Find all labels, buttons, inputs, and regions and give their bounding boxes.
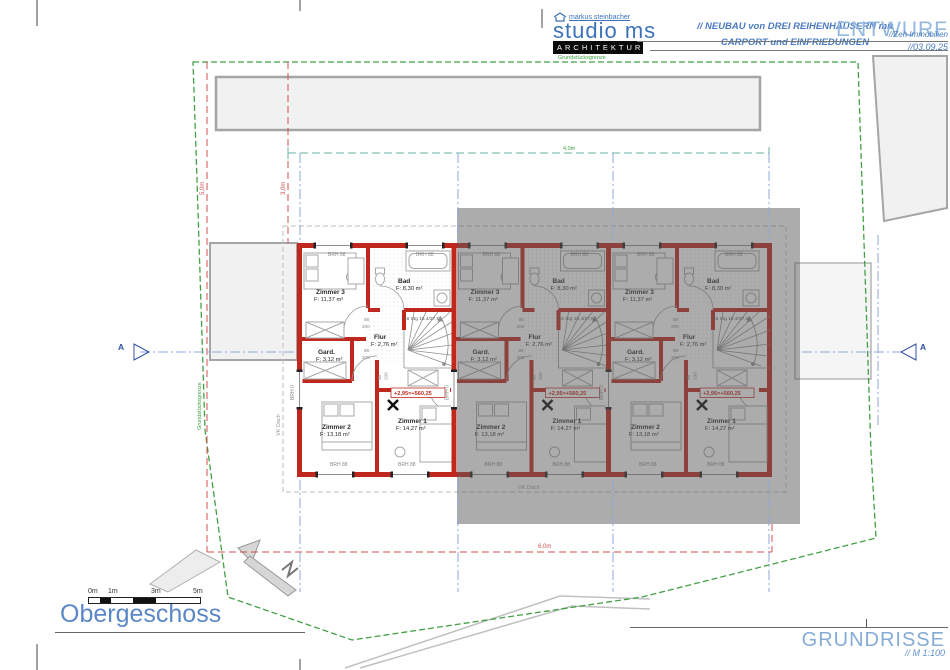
boundary-label-top: Grundstücksgrenze xyxy=(558,55,606,61)
existing-building-right xyxy=(873,56,947,221)
sill-label-zero: BRH 0 xyxy=(445,385,451,400)
dim-top-label: 4,0m xyxy=(563,146,576,152)
window xyxy=(406,243,445,249)
boundary-label-left: Grundstücksgrenze xyxy=(197,382,203,430)
svg-text:200: 200 xyxy=(362,355,370,360)
room-name-zimmer3: Zimmer 3 xyxy=(316,289,345,296)
studio-name: studio ms xyxy=(553,22,656,41)
sheet-scale: // M 1:100 xyxy=(700,648,945,658)
street-edges xyxy=(345,596,650,668)
washbasin xyxy=(434,290,450,306)
north-arrow-icon xyxy=(238,540,298,596)
existing-building-top-strip xyxy=(216,77,760,130)
roof-edge-label-left: VK Dach xyxy=(276,414,282,436)
room-area-zimmer1: F: 14,27 m² xyxy=(396,426,426,432)
sill-label: BRH 88 xyxy=(328,252,346,258)
client-label: //Zeh Immobilien xyxy=(800,30,948,39)
window xyxy=(314,243,353,249)
ghost-units-overlay xyxy=(457,208,800,524)
room-name-zimmer1: Zimmer 1 xyxy=(398,418,427,425)
room-name-zimmer2: Zimmer 2 xyxy=(322,424,351,431)
stair-note: 16 Stg 18,4/27,6 xyxy=(404,316,440,322)
setback-dim-bottom: 6,0m xyxy=(538,544,551,550)
svg-text:88: 88 xyxy=(377,374,382,380)
scale-tick-label: 0m xyxy=(88,588,98,595)
window xyxy=(391,472,430,478)
scale-tick-label: 5m xyxy=(193,588,203,595)
sill-label-zero: BRH 0 xyxy=(290,385,296,400)
wardrobe xyxy=(408,370,438,386)
room-name-bad: Bad xyxy=(398,278,410,285)
dimension-line-top: 4,0m xyxy=(288,146,769,159)
setback-dim-outer: 5,0m xyxy=(200,182,206,195)
studio-logo: markus steinbacher studio ms ARCHITEKTUR xyxy=(553,12,656,54)
wardrobe xyxy=(306,322,344,338)
sill-label: BRH 88 xyxy=(416,252,434,258)
svg-text:200: 200 xyxy=(362,324,370,329)
desk xyxy=(348,258,364,284)
section-marker-left: A xyxy=(118,342,149,360)
room-area-zimmer3: F: 11,37 m² xyxy=(314,297,343,303)
plan-title: Obergeschoss xyxy=(60,600,221,629)
footer-rule-left xyxy=(55,632,305,633)
room-area-gard: F: 3,12 m² xyxy=(316,357,342,363)
scale-tick-label: 1m xyxy=(108,588,118,595)
room-name-gard: Gard. xyxy=(318,349,335,356)
wardrobe xyxy=(304,362,346,379)
window-tall-left xyxy=(297,370,303,410)
existing-building-right-small xyxy=(795,263,871,379)
existing-building-left xyxy=(210,243,297,360)
site-ramp-shape xyxy=(150,550,220,592)
svg-text:88: 88 xyxy=(364,317,370,322)
room-area-zimmer2: F: 13,18 m² xyxy=(320,432,350,438)
room-name-flur: Flur xyxy=(374,334,387,341)
section-marker-right: A xyxy=(901,342,926,360)
room-area-flur: F: 2,76 m² xyxy=(371,342,397,348)
scale-tick-label: 3m xyxy=(151,588,161,595)
studio-tagline: ARCHITEKTUR xyxy=(553,41,643,54)
svg-text:88: 88 xyxy=(364,348,370,353)
date-label: //03.09.25 xyxy=(800,42,948,52)
section-letter: A xyxy=(920,342,926,352)
footer-rule-right xyxy=(630,627,948,628)
sill-label: BRH 88 xyxy=(330,462,348,468)
section-letter: A xyxy=(118,342,124,352)
svg-text:+2,95=+560,25: +2,95=+560,25 xyxy=(394,391,432,397)
site-plan-drawing: Grundstücksgrenze Grundstücksgrenze 5,0m… xyxy=(0,0,950,670)
room-area-bad: F: 8,30 m² xyxy=(396,286,422,292)
drawing-sheet: Grundstücksgrenze Grundstücksgrenze 5,0m… xyxy=(0,0,950,670)
setback-dim-inner: 3,0m xyxy=(281,182,287,195)
chair xyxy=(395,447,405,457)
window xyxy=(316,472,355,478)
svg-text:200: 200 xyxy=(384,372,389,380)
sill-label: BRH 88 xyxy=(398,462,416,468)
footer-tick xyxy=(866,619,867,627)
